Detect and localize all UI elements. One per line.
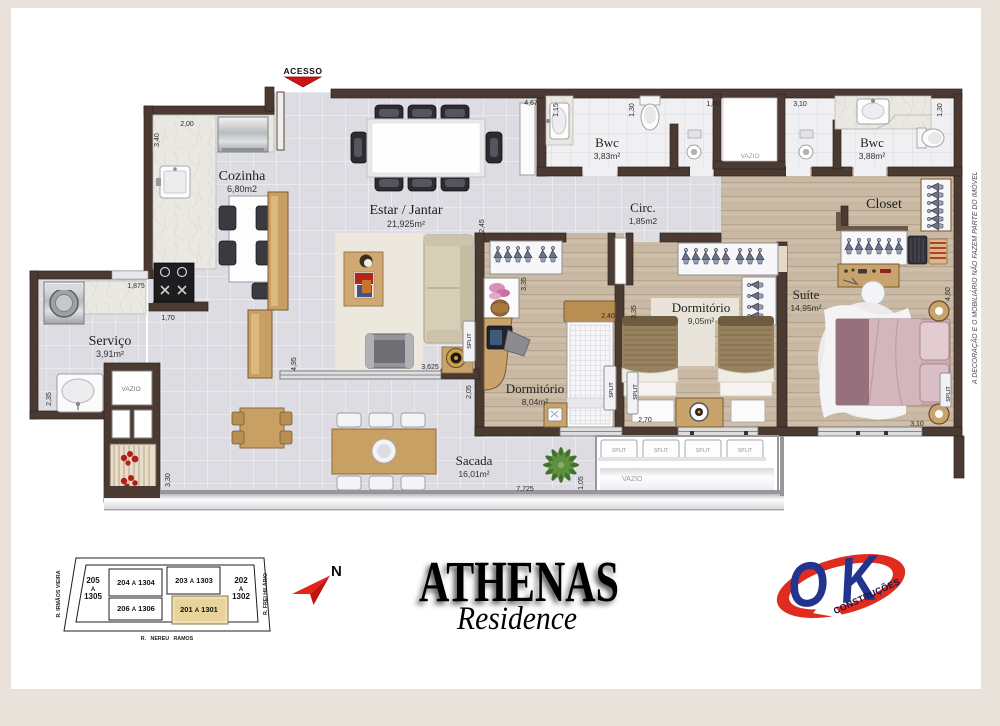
svg-text:2,00: 2,00 [180, 121, 194, 128]
svg-text:SPLIT: SPLIT [612, 448, 626, 454]
svg-text:7,725: 7,725 [516, 486, 534, 493]
svg-text:Bwc: Bwc [595, 135, 619, 150]
svg-text:SPLIT: SPLIT [633, 384, 639, 400]
svg-text:Dormitório: Dormitório [672, 300, 731, 315]
svg-text:R. FREI HILÁRIO: R. FREI HILÁRIO [262, 573, 269, 615]
svg-text:SPLIT: SPLIT [609, 382, 615, 398]
svg-text:201 A 1301: 201 A 1301 [180, 605, 218, 614]
svg-text:1,30: 1,30 [629, 103, 636, 117]
svg-text:3,91m²: 3,91m² [96, 349, 124, 359]
svg-text:6,80m2: 6,80m2 [227, 184, 257, 194]
svg-text:Estar / Jantar: Estar / Jantar [369, 203, 442, 218]
svg-text:ACESSO: ACESSO [284, 66, 323, 76]
svg-text:VAZIO: VAZIO [740, 153, 759, 160]
svg-text:16,01m²: 16,01m² [458, 469, 489, 479]
svg-text:1,70: 1,70 [161, 315, 175, 322]
svg-text:4,67: 4,67 [524, 100, 538, 107]
svg-text:3,35: 3,35 [521, 277, 528, 291]
svg-text:21,925m²: 21,925m² [387, 219, 425, 229]
svg-text:Sacada: Sacada [456, 453, 493, 468]
svg-text:A DECORAÇÃO E O MOBILIÁRIO NÃO: A DECORAÇÃO E O MOBILIÁRIO NÃO FAZEM PAR… [970, 171, 979, 385]
svg-text:Circ.: Circ. [630, 200, 656, 215]
svg-text:206 A 1306: 206 A 1306 [117, 604, 155, 613]
svg-text:SPLIT: SPLIT [738, 448, 752, 454]
svg-text:Closet: Closet [866, 197, 902, 212]
svg-text:3,83m²: 3,83m² [594, 151, 621, 161]
svg-text:4,60: 4,60 [945, 287, 952, 301]
svg-text:2,35: 2,35 [46, 392, 53, 406]
svg-text:R. NEREU RAMOS: R. NEREU RAMOS [141, 636, 194, 642]
svg-text:3,10: 3,10 [793, 101, 807, 108]
svg-text:N: N [331, 563, 342, 580]
svg-text:SPLIT: SPLIT [946, 386, 952, 402]
svg-text:1,15: 1,15 [553, 103, 560, 117]
svg-text:3,40: 3,40 [154, 133, 161, 147]
svg-text:Residence: Residence [456, 601, 577, 637]
svg-text:2,70: 2,70 [638, 417, 652, 424]
svg-text:2,40: 2,40 [601, 313, 615, 320]
svg-text:O: O [784, 548, 831, 622]
svg-text:VAZIO: VAZIO [622, 476, 643, 483]
svg-text:Suíte: Suíte [793, 287, 820, 302]
svg-text:1,875: 1,875 [127, 283, 145, 290]
svg-text:Cozinha: Cozinha [219, 169, 266, 184]
svg-text:4,95: 4,95 [291, 357, 298, 371]
svg-text:Dormitório: Dormitório [506, 381, 565, 396]
svg-text:Serviço: Serviço [89, 334, 132, 349]
svg-text:2,45: 2,45 [479, 219, 486, 233]
svg-text:3,88m²: 3,88m² [859, 151, 886, 161]
svg-text:1,80: 1,80 [706, 101, 720, 108]
svg-text:1,05: 1,05 [578, 476, 585, 490]
svg-text:VAZIO: VAZIO [121, 386, 140, 393]
svg-text:205: 205 [86, 576, 100, 585]
svg-text:SPLIT: SPLIT [696, 448, 710, 454]
svg-text:3,30: 3,30 [165, 473, 172, 487]
svg-text:14,95m²: 14,95m² [790, 303, 821, 313]
svg-text:204 A 1304: 204 A 1304 [117, 578, 156, 587]
svg-text:8,04m²: 8,04m² [522, 397, 549, 407]
svg-text:R. IRMÃOS VIEIRA: R. IRMÃOS VIEIRA [55, 570, 62, 617]
svg-text:1,85m2: 1,85m2 [629, 216, 658, 226]
svg-text:9,05m²: 9,05m² [688, 316, 715, 326]
svg-text:2,05: 2,05 [466, 385, 473, 399]
svg-text:3,625: 3,625 [421, 364, 439, 371]
svg-text:Bwc: Bwc [860, 135, 884, 150]
svg-text:1302: 1302 [232, 592, 250, 601]
svg-text:3,35: 3,35 [631, 305, 638, 319]
svg-text:202: 202 [234, 576, 248, 585]
svg-text:3,10: 3,10 [910, 421, 924, 428]
svg-text:SPLIT: SPLIT [654, 448, 668, 454]
svg-text:1,30: 1,30 [937, 103, 944, 117]
svg-text:1305: 1305 [84, 592, 102, 601]
svg-text:SPLIT: SPLIT [467, 333, 473, 349]
svg-text:203 A 1303: 203 A 1303 [175, 576, 213, 585]
